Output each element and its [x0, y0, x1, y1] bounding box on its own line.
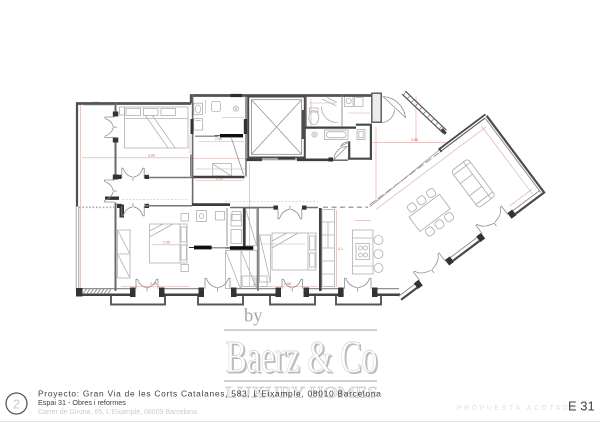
svg-text:Espai 31 - Obres i reformes: Espai 31 - Obres i reformes [38, 398, 126, 407]
svg-text:E 31: E 31 [568, 399, 595, 414]
svg-text:2: 2 [13, 397, 20, 412]
svg-text:2.05: 2.05 [163, 241, 170, 245]
svg-text:2.96: 2.96 [215, 137, 222, 141]
svg-text:4.1: 4.1 [338, 247, 343, 251]
svg-text:Carrer de Girona, 65, L'Eixamp: Carrer de Girona, 65, L'Eixample, 08009 … [38, 409, 197, 416]
svg-text:by: by [244, 307, 263, 327]
svg-text:PROPUESTA ACOTADA: PROPUESTA ACOTADA [457, 405, 578, 412]
svg-text:3.60: 3.60 [148, 154, 155, 158]
svg-text:3.88: 3.88 [411, 138, 418, 142]
svg-text:Baerz & Co: Baerz & Co [225, 332, 377, 382]
